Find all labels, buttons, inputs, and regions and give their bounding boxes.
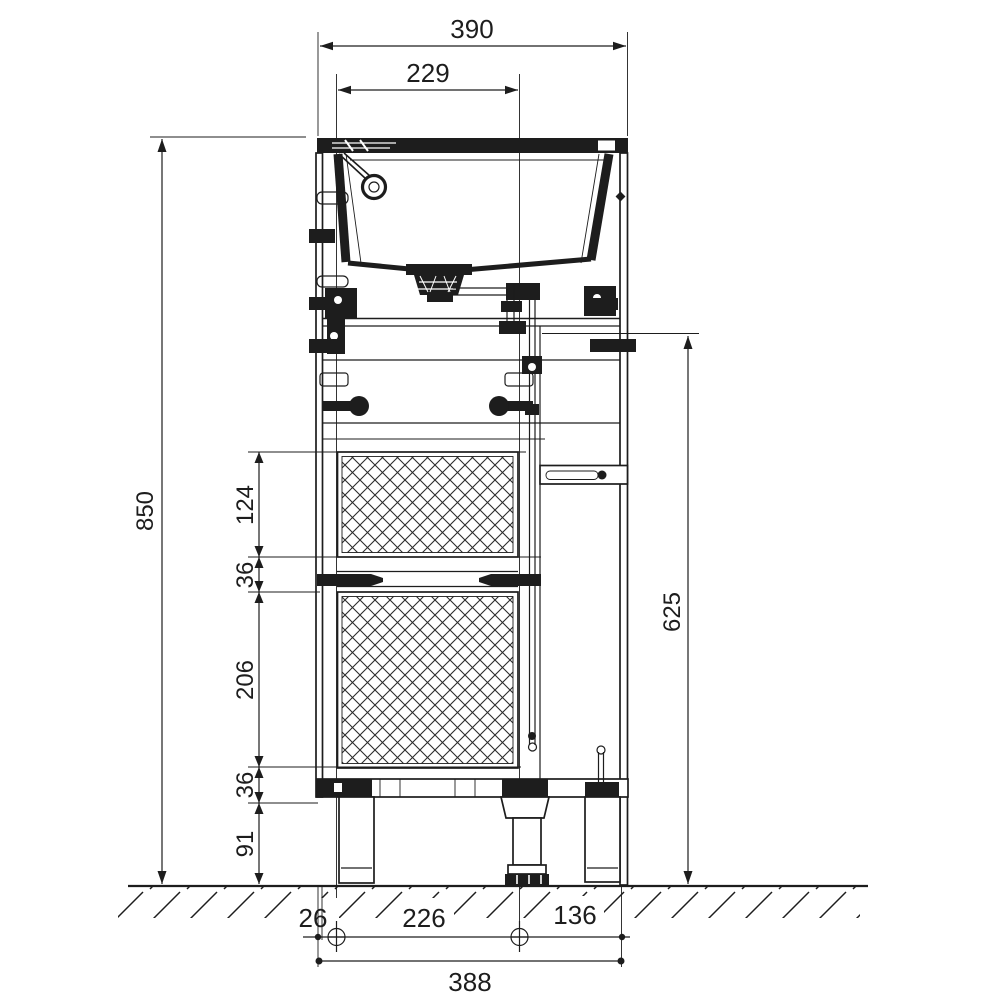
dim-carcase-height-label: 625 [659, 592, 686, 632]
dim-foot-height-label: 91 [232, 831, 259, 858]
technical-drawing: 390 229 850 625 [0, 0, 1000, 1000]
left-leg [339, 797, 374, 883]
right-side-panel [620, 153, 628, 885]
dim-lower-gap-label: 36 [232, 772, 259, 799]
dim-lower-front-label: 206 [232, 660, 259, 700]
upper-drawer-hatch [342, 457, 513, 553]
bottom-rail [317, 779, 628, 797]
dim-overall-height-label: 850 [132, 491, 159, 531]
dim-base-width-label: 388 [448, 967, 491, 997]
dim-basin-cutout-label: 229 [406, 58, 449, 88]
dim-upper-front-label: 124 [232, 485, 259, 525]
lower-drawer-hatch [342, 597, 513, 764]
rear-mounting-bracket [540, 466, 628, 485]
dim-upper-gap-label: 36 [232, 562, 259, 589]
ground-hatch [118, 887, 860, 918]
left-side-panel [316, 153, 323, 797]
dim-front-offset-label: 26 [299, 903, 328, 933]
dim-fixing-span-label: 226 [402, 903, 445, 933]
drawing-canvas: 390 229 850 625 [0, 0, 1000, 1000]
dim-rear-span-label: 136 [553, 900, 596, 930]
dim-overall-width-label: 390 [450, 14, 493, 44]
